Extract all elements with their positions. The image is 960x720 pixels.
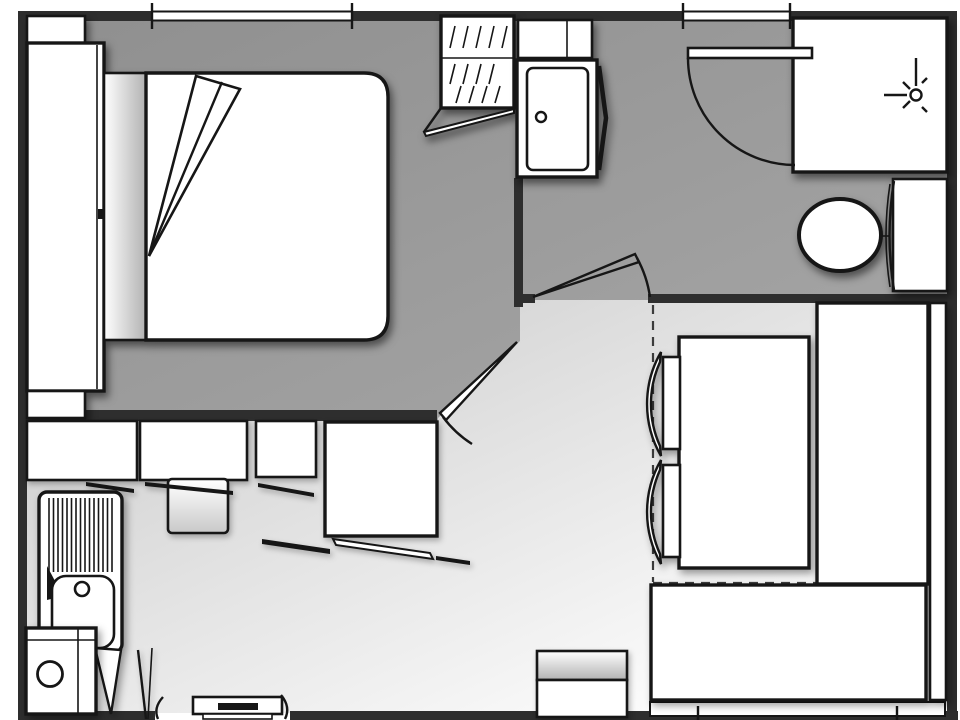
hall-partition-wall [514,178,523,307]
door-knob [536,112,546,122]
kitchen-wall-cabinet [256,421,316,477]
utility-cabinet [517,20,606,177]
dining [647,303,946,700]
window-top-right [683,12,790,21]
side-cabinet-top [537,651,627,680]
cabinet-top-shelf [518,20,592,58]
window-top-left [152,12,352,21]
entry-step-lower [203,714,272,719]
kitchen-bedroom-wall [27,410,437,421]
drainboard-ridges [49,498,112,572]
entry-step-mat [218,703,258,710]
toilet-bowl [799,199,881,271]
bench-backrest-strip [930,303,946,700]
under-sink-appliance [26,628,96,714]
dining-table [679,337,809,568]
side-cabinet-base [537,680,627,717]
tall-cabinet-block [325,422,437,536]
floor-plan-page [0,0,960,720]
bench-seat-bottom [651,585,926,700]
kitchen-cabinet [140,421,247,480]
window-bottom [650,702,945,716]
chair-seat [663,465,680,557]
chair-seat [663,357,680,449]
bench-seat-right [817,303,928,584]
sink-drain [75,582,89,596]
bed-mattress [146,73,388,340]
linen-closet-body [441,16,514,108]
bed-headboard [104,73,146,340]
shower-tray [793,18,947,172]
side-cabinet [537,651,627,717]
wardrobe [27,43,104,391]
floor-plan-canvas [0,0,960,720]
bottom-shelf [27,391,85,418]
entrance-door-leaf [688,48,812,58]
shower [793,18,947,172]
toilet-cistern [893,179,947,291]
top-shelf [27,16,85,43]
bathroom-wall-stub [514,294,535,303]
kitchen-cabinet [27,421,137,480]
appliance-dial [38,662,63,687]
